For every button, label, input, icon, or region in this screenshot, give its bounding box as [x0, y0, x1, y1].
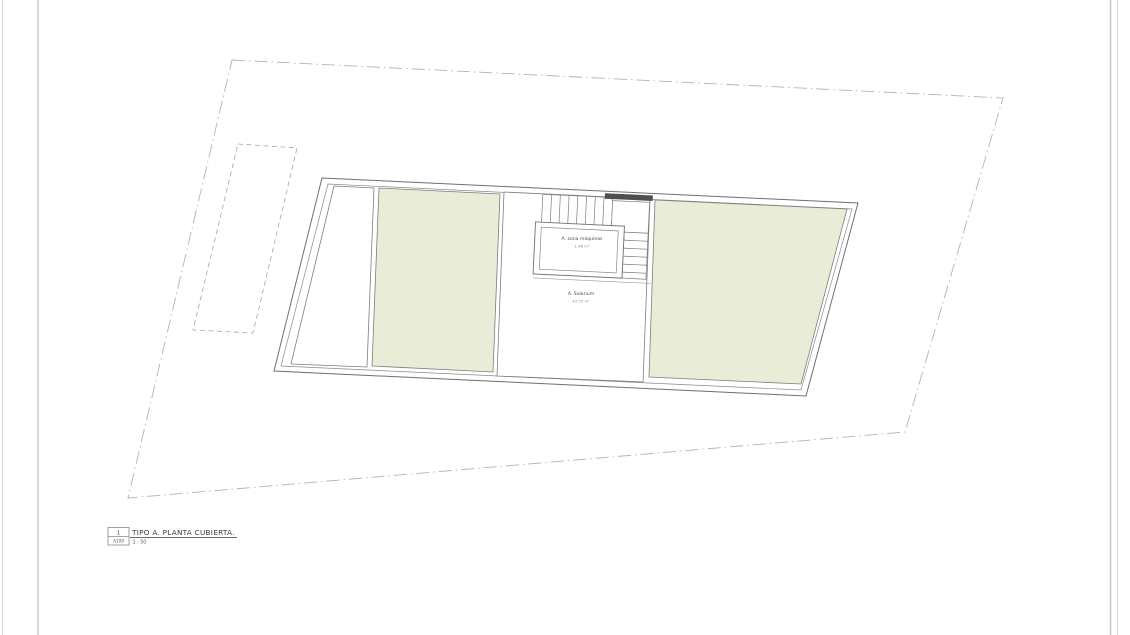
- sheet-ref: A109: [113, 539, 124, 544]
- solarium-label: A. Solarium: [568, 291, 595, 297]
- solarium-area: 43.55 m²: [572, 299, 590, 304]
- machine-room-inner-wall: [539, 227, 618, 273]
- building: A. zona máquinas 1.46 m² A. Solarium 43.…: [274, 178, 858, 396]
- drawing-sheet: A. zona máquinas 1.46 m² A. Solarium 43.…: [0, 0, 1130, 635]
- roof-section-green-left: [372, 188, 500, 372]
- machine-room: [533, 222, 624, 278]
- roof-plan-drawing: A. zona máquinas 1.46 m² A. Solarium 43.…: [0, 0, 1130, 635]
- drawing-scale: 1 : 50: [133, 540, 147, 546]
- view-number: 1: [117, 531, 120, 537]
- machine-room-area: 1.46 m²: [574, 244, 590, 249]
- drawing-title: TIPO A. PLANTA CUBIERTA.: [131, 528, 235, 537]
- stair-lower-flight: [622, 232, 648, 279]
- machine-room-label: A. zona máquinas: [562, 235, 604, 242]
